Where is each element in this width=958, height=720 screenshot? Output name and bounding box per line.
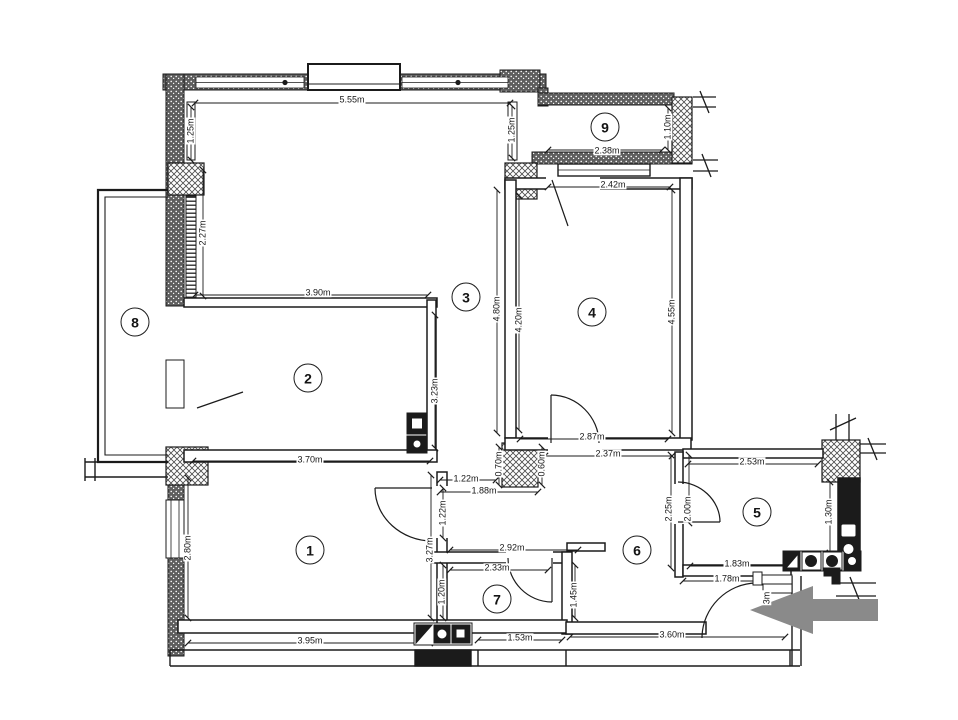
dimension-label: 1.83m — [723, 559, 750, 568]
dimension-label: 2.53m — [738, 457, 765, 466]
room-label-6: 6 — [623, 536, 652, 565]
dimension-label: 1.20m — [437, 578, 446, 605]
dimension-label: 2.38m — [593, 146, 620, 155]
doors — [197, 180, 757, 638]
dimension-label: 2.25m — [664, 495, 673, 522]
dimension-label: 3m — [762, 591, 771, 606]
room-label-8: 8 — [121, 308, 150, 337]
dimension-label: 4.55m — [667, 298, 676, 325]
dimension-label: 3.60m — [658, 630, 685, 639]
dimension-label: 2.33m — [483, 563, 510, 572]
dimension-label: 2.87m — [578, 432, 605, 441]
dimension-label: 3.23m — [430, 377, 439, 404]
dimension-label: 1.78m — [713, 574, 740, 583]
dimension-label: 2.37m — [594, 449, 621, 458]
dimension-label: 2.27m — [198, 219, 207, 246]
balcony — [85, 190, 168, 481]
dimension-label: 4.80m — [492, 295, 501, 322]
dimension-label: 2.42m — [599, 180, 626, 189]
door-openings — [436, 177, 684, 564]
dimension-label: 1.53m — [506, 633, 533, 642]
dimension-label: 1.10m — [663, 113, 672, 140]
dimension-label: 3.95m — [296, 636, 323, 645]
dimension-label: 1.88m — [470, 486, 497, 495]
room-label-9: 9 — [591, 113, 620, 142]
floor-plan-drawing — [0, 0, 958, 720]
dimension-label: 1.45m — [569, 581, 578, 608]
dimension-label: 0.60m — [537, 450, 546, 477]
dimension-label: 1.22m — [438, 499, 447, 526]
dimension-label: 1.22m — [452, 474, 479, 483]
dimension-label: 3.70m — [296, 455, 323, 464]
room-label-5: 5 — [743, 498, 772, 527]
dimension-label: 4.20m — [514, 306, 523, 333]
dimension-label: 3.90m — [304, 288, 331, 297]
floor-plan-page: 1 2 3 4 5 6 7 8 9 5.55m 1.25m 1.25m 2.27… — [0, 0, 958, 720]
room-label-1: 1 — [296, 536, 325, 565]
dimension-label: 1.25m — [186, 117, 195, 144]
room-label-7: 7 — [483, 585, 512, 614]
dimension-label: 2.92m — [498, 543, 525, 552]
dimension-label: 2.00m — [683, 495, 692, 522]
dimension-label: 0.70m — [494, 450, 503, 477]
dimension-label: 3.27m — [425, 536, 434, 563]
dimension-label: 1.30m — [824, 498, 833, 525]
room-label-3: 3 — [452, 283, 481, 312]
dimension-label: 5.55m — [338, 95, 365, 104]
dimension-label: 2.80m — [183, 534, 192, 561]
room-label-4: 4 — [578, 298, 607, 327]
room-label-2: 2 — [294, 364, 323, 393]
dimension-label: 1.25m — [507, 116, 516, 143]
